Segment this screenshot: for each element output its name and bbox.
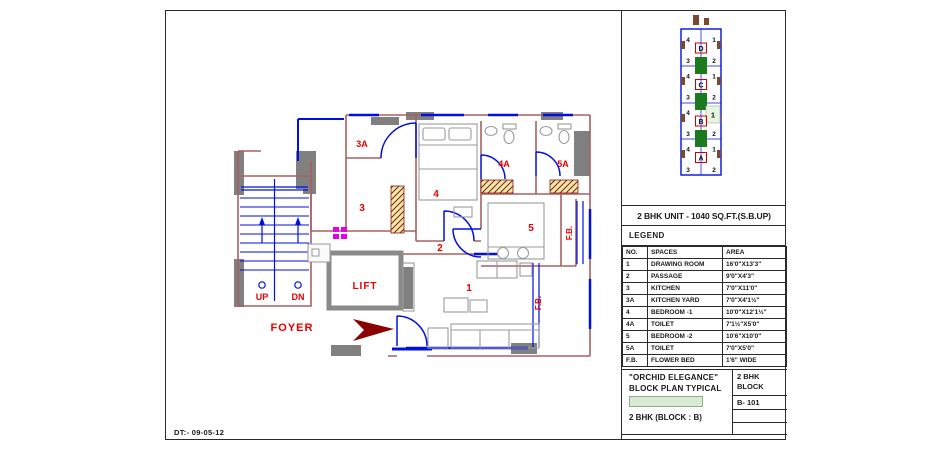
- entrance-arrow: [353, 319, 394, 341]
- sofa-set: [403, 261, 539, 348]
- cell-no: 4: [623, 307, 648, 319]
- utility-box: [308, 244, 330, 262]
- legend-row: 4 BEDROOM -1 10'0"X12'1½": [623, 307, 787, 319]
- label-room-4: 4: [433, 189, 439, 200]
- plumbing-fixtures: [333, 227, 347, 239]
- label-room-3a: 3A: [356, 139, 368, 149]
- legend-row: 3A KITCHEN YARD 7'0"X4'1½": [623, 295, 787, 307]
- cell-area: 7'0"X4'1½": [723, 295, 787, 307]
- unit-number: 3: [686, 95, 690, 102]
- legend-table: NO. SPACES AREA 1 DRAWING ROOM 16'0"X13'…: [622, 246, 787, 367]
- label-flower-bed-1: F.B.: [565, 226, 574, 240]
- cell-space: BEDROOM -1: [648, 307, 723, 319]
- cell-no: 3: [623, 283, 648, 295]
- cell-space: TOILET: [648, 343, 723, 355]
- block-plan-key: D C B A 4 1 3 2 4 1 3 2 4 1: [679, 13, 723, 177]
- label-room-3: 3: [359, 203, 365, 214]
- bed-room4: [419, 124, 477, 217]
- title-panel: D C B A 4 1 3 2 4 1 3 2 4 1: [621, 11, 786, 439]
- section-b-label: B: [698, 119, 703, 126]
- legend-row: 1 DRAWING ROOM 16'0"X13'3": [623, 259, 787, 271]
- label-flower-bed-2: F.B.: [534, 296, 543, 310]
- title-block-left: "ORCHID ELEGANCE" BLOCK PLAN TYPICAL 2 B…: [622, 370, 732, 434]
- cell-space: KITCHEN YARD: [648, 295, 723, 307]
- label-lift: LIFT: [352, 281, 377, 292]
- stair-arrowheads: [259, 217, 301, 225]
- furniture: [403, 124, 571, 348]
- block-label: 2 BHK BLOCK: [733, 370, 787, 396]
- legend-header-area: AREA: [723, 247, 787, 259]
- cell-space: KITCHEN: [648, 283, 723, 295]
- cell-area: 10'0"X12'1½": [723, 307, 787, 319]
- cell-no: 3A: [623, 295, 648, 307]
- empty-cell: [733, 423, 787, 435]
- legend-header-row: NO. SPACES AREA: [623, 247, 787, 259]
- cell-no: F.B.: [623, 355, 648, 367]
- cell-area: 7'0"X5'0": [723, 343, 787, 355]
- bed-room5: [488, 203, 544, 259]
- legend-row: 3 KITCHEN 7'0"X11'0": [623, 283, 787, 295]
- cell-area: 10'6"X10'0": [723, 331, 787, 343]
- cell-no: 5: [623, 331, 648, 343]
- label-room-4a: 4A: [498, 159, 510, 169]
- unit-number: 3: [686, 131, 690, 138]
- unit-number: 1: [712, 37, 716, 44]
- label-dn: DN: [292, 292, 305, 302]
- cell-space: PASSAGE: [648, 271, 723, 283]
- stair-cores: [695, 57, 707, 147]
- legend-row: 5 BEDROOM -2 10'6"X10'0": [623, 331, 787, 343]
- unit-number: 2: [712, 131, 716, 138]
- legend-header-spaces: SPACES: [648, 247, 723, 259]
- section-d-label: D: [698, 46, 703, 53]
- unit-number: 3: [686, 167, 690, 174]
- legend-row: 5A TOILET 7'0"X5'0": [623, 343, 787, 355]
- plan-type: BLOCK PLAN TYPICAL: [629, 384, 732, 393]
- label-up: UP: [256, 292, 269, 302]
- legend-row: F.B. FLOWER BED 1'6" WIDE: [623, 355, 787, 367]
- unit-number: 4: [686, 37, 690, 44]
- label-foyer: FOYER: [271, 322, 314, 334]
- drawing-frame: 3A 3 4 2 4A 5A 5 1 F.B. F.B. LIFT UP DN …: [165, 10, 786, 440]
- unit-title: 2 BHK UNIT - 1040 SQ.FT.(S.B.UP): [622, 205, 786, 226]
- cell-area: 7'0"X11'0": [723, 283, 787, 295]
- unit-color-swatch: [629, 396, 703, 407]
- cell-no: 4A: [623, 319, 648, 331]
- unit-number: 1: [712, 147, 716, 154]
- unit-block-line: 2 BHK (BLOCK : B): [629, 413, 732, 422]
- unit-number: 4: [686, 147, 690, 154]
- drawing-date: DT:- 09-05-12: [174, 428, 224, 437]
- floor-plan: 3A 3 4 2 4A 5A 5 1 F.B. F.B. LIFT UP DN …: [166, 11, 621, 441]
- project-name: "ORCHID ELEGANCE": [629, 373, 732, 382]
- unit-number: 3: [686, 58, 690, 65]
- label-room-5a: 5A: [557, 159, 569, 169]
- label-room-5: 5: [528, 223, 534, 234]
- unit-number: 4: [686, 74, 690, 81]
- cell-area: 16'0"X13'3": [723, 259, 787, 271]
- block-label-line1: 2 BHK: [737, 372, 787, 382]
- highlighted-unit-number: 1: [711, 111, 715, 120]
- cell-space: DRAWING ROOM: [648, 259, 723, 271]
- cad-drawing-canvas: 3A 3 4 2 4A 5A 5 1 F.B. F.B. LIFT UP DN …: [0, 0, 950, 450]
- cell-space: FLOWER BED: [648, 355, 723, 367]
- block-label-line2: BLOCK: [737, 382, 787, 392]
- label-room-1: 1: [466, 283, 472, 294]
- unit-number: 2: [712, 95, 716, 102]
- legend-row: 2 PASSAGE 9'0"X4'3": [623, 271, 787, 283]
- cell-no: 2: [623, 271, 648, 283]
- cell-no: 5A: [623, 343, 648, 355]
- unit-number-cell: B- 101: [733, 396, 787, 410]
- section-c-label: C: [698, 83, 703, 90]
- cell-space: TOILET: [648, 319, 723, 331]
- label-room-2: 2: [437, 243, 443, 254]
- unit-number: 4: [686, 110, 690, 117]
- cell-area: 1'6" WIDE: [723, 355, 787, 367]
- cell-space: BEDROOM -2: [648, 331, 723, 343]
- unit-number: 2: [712, 58, 716, 65]
- legend-title: LEGEND: [622, 226, 786, 246]
- section-a-label: A: [698, 156, 703, 163]
- title-block: "ORCHID ELEGANCE" BLOCK PLAN TYPICAL 2 B…: [622, 369, 787, 435]
- block-plan-stubs-top: [693, 15, 709, 25]
- windows-and-doors: [240, 115, 590, 349]
- legend-header-no: NO.: [623, 247, 648, 259]
- cell-area: 7'1½"X5'0": [723, 319, 787, 331]
- toilet-4a-fixtures: [485, 124, 516, 144]
- empty-cell: [733, 410, 787, 423]
- unit-number: 1: [712, 74, 716, 81]
- cell-area: 9'0"X4'3": [723, 271, 787, 283]
- walls: [238, 115, 590, 356]
- toilet-5a-fixtures: [540, 124, 571, 144]
- legend-row: 4A TOILET 7'1½"X5'0": [623, 319, 787, 331]
- cell-no: 1: [623, 259, 648, 271]
- title-block-right: 2 BHK BLOCK B- 101: [732, 370, 787, 434]
- unit-number: 2: [712, 167, 716, 174]
